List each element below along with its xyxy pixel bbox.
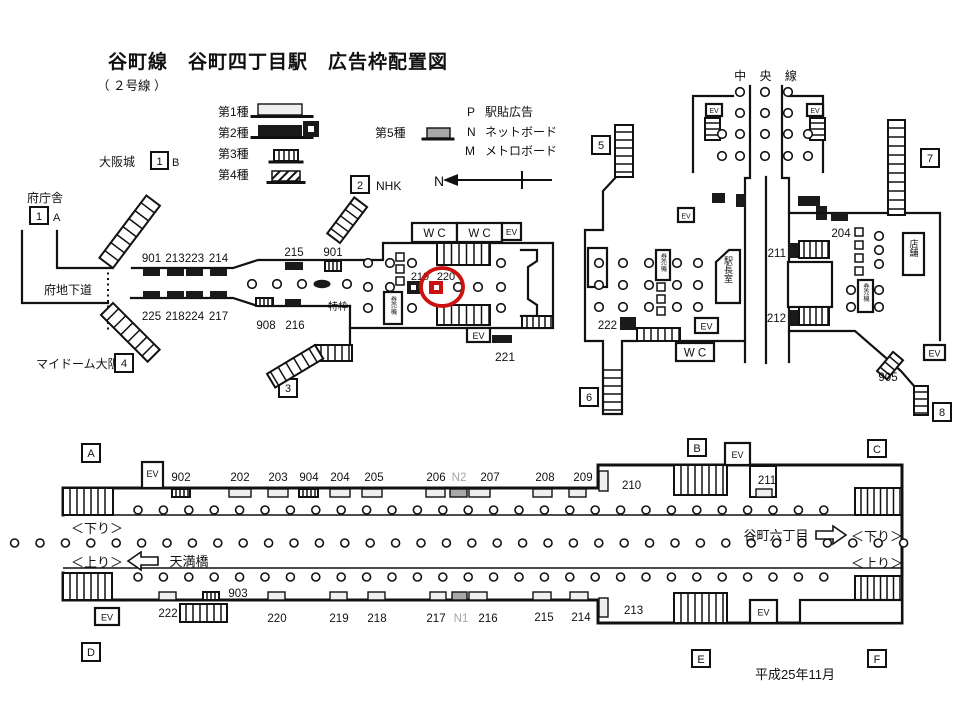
pillar-icon [386,259,395,268]
frame-204-box [330,489,350,497]
pillar-icon [722,539,730,547]
poster-frame-icon [396,277,404,285]
pillar-icon [595,303,604,312]
frame-label: 214 [571,612,591,624]
corridor-top-frames: 901 213 223 214 [142,253,229,276]
frame-label: 210 [622,480,641,492]
pillar-icon [744,506,752,514]
frame-label-221: 221 [495,350,515,364]
type2-frame-icon [258,125,302,136]
track-frame [712,193,725,203]
frame-label-908: 908 [256,320,275,332]
frame-213-box [599,598,608,617]
ticket-machine-east-label: 券売機 [862,282,869,302]
pillar-icon [248,280,257,289]
north-arrow-icon: N [434,171,552,189]
pillar-icon [210,573,218,581]
frame-label: 225 [142,311,161,323]
legend-type5-label: 第5種 [375,126,406,140]
exit-5-number: 5 [598,140,604,152]
down-label-left: ＜下り＞ [71,521,123,536]
frame-211-box [756,489,772,497]
ev-west-label: EV [700,322,712,332]
frame-220-icon-center [434,285,439,290]
pillar-icon [875,232,884,241]
pillar-icon [645,259,654,268]
pillar-icon [236,573,244,581]
stairs-b [674,465,727,495]
platform-top-frames: 902 202 203 904 204 205 206 N2 207 208 2… [171,471,641,497]
pillar-icon [761,109,770,118]
pillar-icon [364,283,373,292]
frame-label-905: 905 [878,372,897,384]
frame-207-box [469,489,490,497]
corner-c: C [873,444,881,456]
pillar-icon [386,283,395,292]
pillar-icon [364,259,373,268]
exit-6-number: 6 [586,392,592,404]
frame-label: 220 [267,613,286,625]
frame-212e-box [788,310,799,326]
frame-214-box [570,592,588,600]
hall-stairs-south-rungs [444,305,489,325]
south-east-room [800,600,902,623]
corner-e: E [697,654,704,666]
pillar-icon [239,539,247,547]
ticket-machine-west-label: 券売機 [660,252,667,272]
pillar-icon [261,573,269,581]
pillar-icon [642,573,650,581]
exit-1a-number: 1 [36,211,42,223]
pillar-icon [736,152,745,161]
frame-220-box [268,592,285,600]
frame-205-box [362,489,382,497]
pillar-icon [718,573,726,581]
frame-label: 217 [209,311,228,323]
type5-frame-icon [427,128,450,138]
pillar-row-south [134,573,828,581]
frame-222e-box [620,317,636,330]
pillar-icon [718,152,727,161]
pillar-icon [619,281,628,290]
exit-1b-number: 1 [156,156,162,168]
north-letter: N [434,173,444,189]
legend-m-key: M [465,144,475,158]
pillar-icon [875,303,884,312]
west-concourse-map: 府庁舎 1 A 大阪城 1 B 府地下道 マイドーム大阪 4 2 NHK 3 9… [22,152,553,397]
frame-label: 211 [758,475,776,487]
hall-east-notch [521,250,537,316]
frame-label: 216 [478,613,497,625]
exit-fuchosha-label: 府庁舎 [27,190,63,205]
pillar-icon [718,130,727,139]
pillar-icon [694,303,703,312]
pillar-icon [794,573,802,581]
pillar-icon [468,539,476,547]
corner-f: F [874,654,881,666]
pillar-icon [544,539,552,547]
pillar-icon [591,506,599,514]
corner-a: A [87,448,95,460]
frame-n1-box [452,592,467,600]
page-title: 谷町線 谷町四丁目駅 広告枠配置図 [108,50,448,73]
frame-label: 901 [142,253,161,265]
stair-landing [788,262,832,307]
pillar-icon [286,573,294,581]
stairs-c-north-rungs [861,488,900,515]
frame-203-box [268,489,288,497]
pillar-icon [617,506,625,514]
pillar-icon [667,506,675,514]
pillar-icon [784,109,793,118]
pillar-icon [566,573,574,581]
type1-frame-icon [258,104,302,115]
pillar-icon [519,539,527,547]
pillar-icon [875,286,884,295]
exit-8-stairs [914,386,928,415]
frame-label: 209 [573,472,592,484]
legend-m-label: メトロボード [485,144,557,158]
pillar-icon [569,539,577,547]
pillar-icon [159,506,167,514]
exit-3-number: 3 [285,383,291,395]
ev-a-label: EV [146,469,158,479]
issued-date: 平成25年11月 [755,667,835,682]
pillar-icon [337,573,345,581]
pillar-icon [761,152,770,161]
pillar-icon [784,130,793,139]
ev-e-label: EV [757,608,769,618]
ev-b-label: EV [731,450,743,460]
ev-top-label: EV [506,227,518,237]
frame-label: 206 [426,472,445,484]
shop-label: 店舗 [909,238,919,258]
pillar-icon [439,573,447,581]
pillar-icon [761,130,770,139]
pillar-icon [312,506,320,514]
line-subtitle: （ ２号線 ） [97,78,166,93]
wc1-label: W C [423,228,445,240]
pillar-icon [645,281,654,290]
pillar-icon [364,304,373,313]
pillar-icon [736,109,745,118]
pillar-icon [417,539,425,547]
frame-208-box [533,489,552,497]
stairs-c-north [855,488,902,515]
pillar-icon [312,573,320,581]
legend: 第1種 第2種 第3種 第4種 第5種 P 駅貼広告 N ネットボード M メト… [218,104,557,189]
pillar-icon [620,539,628,547]
pillar-icon [642,506,650,514]
west-hall-pillars [595,259,703,312]
pillar-icon [392,539,400,547]
pillar-icon [442,539,450,547]
frame-217-box [430,592,446,600]
pillar-icon [761,88,770,97]
frame-221-box [492,335,512,343]
frame-label: 224 [185,311,205,323]
frame-label-215: 215 [284,247,303,259]
pillar-icon [673,259,682,268]
frame-216-box [285,299,301,306]
pillar-icon [875,260,884,269]
pillar-icon [185,506,193,514]
frame-204-box [831,213,848,221]
pillar-icon [693,573,701,581]
pillar-icon [619,303,628,312]
pillar-icon [497,304,506,313]
pillar-icon [595,539,603,547]
frame-label: 213 [165,253,184,265]
pillar-icon [413,506,421,514]
frame-label: 222 [158,608,177,620]
type4-frame-icon [272,171,300,181]
corridor-pillars [248,280,352,289]
poster-frame-icon [396,253,404,261]
stairs-d [180,604,227,622]
pillar-icon [138,539,146,547]
pillar-icon [847,286,856,295]
ev-mezz-east-label: EV [810,108,820,115]
ev-west-upper-label: EV [681,214,691,221]
legend-type2-label: 第2種 [218,126,249,140]
corner-d: D [87,647,95,659]
pillar-icon [744,573,752,581]
frame-label-n1: N1 [454,613,469,625]
pillar-icon [823,539,831,547]
frame-label: 219 [329,613,348,625]
pillar-icon [286,506,294,514]
pillar-icon [163,539,171,547]
corner-b: B [693,443,700,455]
pillar-icon [784,152,793,161]
mezz-pillars [718,88,813,161]
pillar-icon [693,506,701,514]
exit-osakajo-label: 大阪城 [99,155,135,169]
pillar-icon [112,539,120,547]
header: 谷町線 谷町四丁目駅 広告枠配置図 （ ２号線 ） [97,50,448,93]
oval-pillar [314,280,331,288]
pillar-icon [474,283,483,292]
pillar-icon [413,573,421,581]
exit-2-stairs [327,197,367,243]
exit-7-number: 7 [927,153,933,165]
pillar-icon [673,303,682,312]
pillar-icon [134,506,142,514]
frame-label: 203 [268,472,287,484]
pillar-icon [769,573,777,581]
poster-frame-icon [657,295,665,303]
pillar-icon [185,573,193,581]
poster-frame-icon [855,254,863,262]
pillar-icon [595,259,604,268]
frame-209-box [569,489,586,497]
ev-mezz-west-label: EV [709,108,719,115]
frame-215-box [285,262,303,270]
pillar-icon [210,506,218,514]
platform-diagram: A B C D E F EV EV EV EV 211 902 202 203 … [11,439,908,682]
station-master-label: 駅長室 [723,256,733,283]
ev-hall-south-label: EV [472,331,484,341]
station-layout-page: 谷町線 谷町四丁目駅 広告枠配置図 （ ２号線 ） 第1種 第2種 第3種 第4… [0,0,960,720]
pillar-icon [87,539,95,547]
frame-label: 223 [185,253,204,265]
pillar-icon [236,506,244,514]
frame-label: 214 [209,253,229,265]
frame-label: 217 [426,613,445,625]
pillar-icon [515,506,523,514]
pillar-icon [188,539,196,547]
pillar-icon [490,573,498,581]
frame-218-box [368,592,385,600]
pillar-icon [820,506,828,514]
pillar-icon [341,539,349,547]
frame-219-box [330,592,347,600]
exit-1b-letter: B [172,157,179,169]
pillar-icon [667,573,675,581]
legend-n-label: ネットボード [485,125,557,139]
pillar-icon [540,506,548,514]
pillar-icon [804,130,813,139]
pillar-icon [794,506,802,514]
pillar-icon [61,539,69,547]
pillar-icon [290,539,298,547]
pillar-icon [497,259,506,268]
pillar-icon [696,539,704,547]
frame-210-box [599,471,608,491]
exit-4-number: 4 [121,358,127,370]
pillar-icon [591,573,599,581]
legend-n-key: N [467,125,476,139]
frame-label: 202 [230,472,249,484]
frame-label: 903 [228,588,247,600]
poster-frame-icon [396,265,404,273]
pillar-icon [134,573,142,581]
pillar-icon [694,259,703,268]
pillar-icon [645,303,654,312]
pillar-icon [540,573,548,581]
pillar-icon [515,573,523,581]
pillar-icon [673,281,682,290]
fu-underpass-label: 府地下道 [44,282,92,297]
frame-n2-box [450,489,467,497]
pillar-icon [493,539,501,547]
frame-label-n2: N2 [452,472,467,484]
frame-label: 204 [330,472,350,484]
pillar-icon [363,506,371,514]
exit1a-inner-wall [57,231,112,268]
frame-label: 218 [367,613,386,625]
type2-square-center [308,126,314,132]
pillar-icon [736,130,745,139]
track-frame [798,196,820,206]
tanimachi6-label: 谷町六丁目 [743,528,808,543]
pillar-icon [736,88,745,97]
frame-label: 215 [534,612,553,624]
exit-8-number: 8 [939,407,945,419]
exit-mydome-label: マイドーム大阪 [36,357,120,371]
pillar-icon [408,304,417,313]
pillar-icon [343,280,352,289]
legend-p-key: P [467,105,475,119]
pillar-row-north [134,506,828,514]
pillar-icon [388,506,396,514]
pillar-icon [619,259,628,268]
hall-stairs-north-rungs [444,243,489,265]
stairs-b-rungs [681,465,723,495]
pillar-icon [646,539,654,547]
pillar-icon [363,573,371,581]
poster-frame-icon [855,228,863,236]
frame-label-222e: 222 [598,320,617,332]
up-label-left: ＜上り＞ [71,555,123,570]
ev-d-label: EV [101,613,113,623]
frame-label: 218 [165,311,184,323]
frame-label-211e: 211 [768,248,786,260]
frame-215-box [533,592,551,600]
chuo-line-label: 中 央 線 [734,68,802,83]
pillar-icon [36,539,44,547]
legend-type4-label: 第4種 [218,168,249,182]
temmabashi-label: 天満橋 [169,554,208,569]
pillar-icon [595,281,604,290]
pillar-icon [566,506,574,514]
pillar-icon [617,573,625,581]
poster-frames-east [855,228,863,275]
frame-216-box [469,592,487,600]
layout-diagram: 谷町線 谷町四丁目駅 広告枠配置図 （ ２号線 ） 第1種 第2種 第3種 第4… [0,0,960,720]
pillar-icon [337,506,345,514]
frame-206-box [426,489,445,497]
poster-frame-icon [855,241,863,249]
legend-type3-label: 第3種 [218,147,249,161]
pillar-icon [464,573,472,581]
pillar-icon [298,280,307,289]
pillar-icon [408,259,417,268]
pillar-icon [804,152,813,161]
corridor-bottom-frames: 225 218 224 217 [142,291,228,323]
frame-202-box [229,489,251,497]
pillar-icon [273,280,282,289]
pillar-icon [875,246,884,255]
down-label-right: ＜下り＞ [851,529,903,544]
frame-label: 902 [171,472,190,484]
poster-frame-icon [657,307,665,315]
wc2-label: W C [468,228,490,240]
exit-6-rungs [603,370,622,410]
frame-219-icon-center [411,285,416,290]
track-frame [736,194,746,207]
poster-frames-west [657,283,665,315]
frame-label-204e: 204 [831,228,851,240]
frame-label: 207 [480,472,499,484]
frame-211e-box [788,243,799,258]
poster-frames [396,253,404,285]
pillar-icon [671,539,679,547]
exit-2-number: 2 [357,180,363,192]
exit-5-stairs [615,125,633,177]
stairs-e-rungs [681,593,723,623]
pillar-icon [497,283,506,292]
exit-1a-letter: A [53,212,61,224]
ticket-machine-label: 券売機 [390,295,397,315]
pillar-icon [366,539,374,547]
pillar-icon [820,573,828,581]
pillar-icon [11,539,19,547]
pillar-icon [490,506,498,514]
pillar-icon [847,303,856,312]
frame-label: 213 [624,605,643,617]
